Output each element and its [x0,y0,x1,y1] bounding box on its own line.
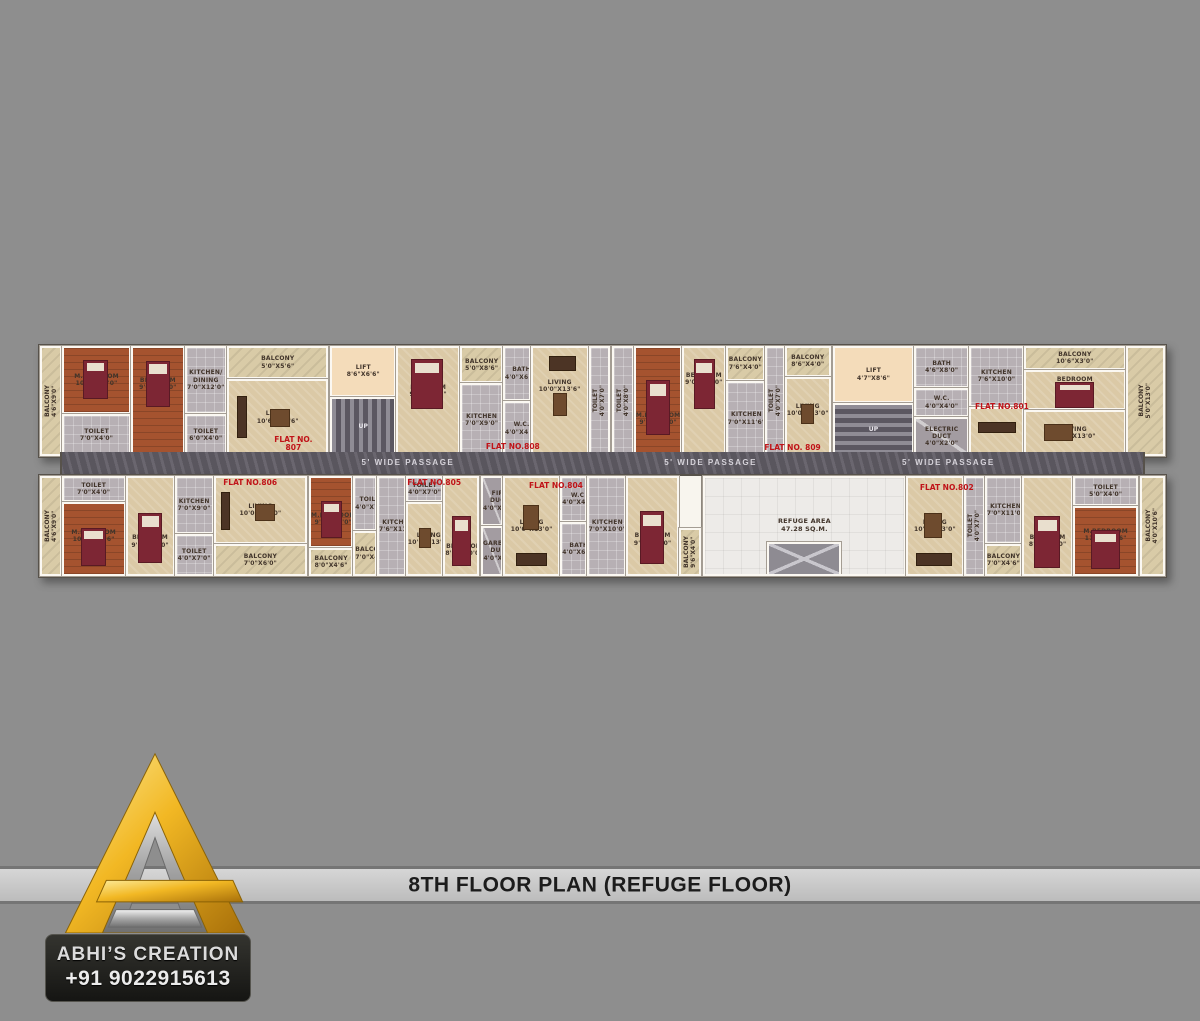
floor-plan: BALCONY 4'6"X9'0" FLAT NO. 807 M.BEDROOM… [38,338,1163,578]
refuge-area: REFUGE AREA 47.28 SQ.M. [703,476,906,576]
flat-808: FLAT NO.808 BEDROOM 9'6"X12'0" BALCONY 5… [396,346,612,456]
room-kitchen: KITCHEN 7'0"X10'0" [587,476,627,576]
room-bedroom: BEDROOM 9'0"X11'0" [126,476,175,576]
brand-phone: +91 9022915613 [65,966,230,991]
table-icon [523,505,539,530]
flat-number: FLAT NO.801 [975,403,1029,412]
room-living: LIVING 10'0"X13'0" [503,476,560,576]
room-bath: BATH 4'0"X6'0" [560,522,586,576]
room-label: W.C. 4'0"X4'0" [925,395,958,409]
sofa-icon [549,356,576,371]
room-balcony-right: BALCONY 5'0"X13'0" [1126,346,1165,456]
room-label: BALCONY 7'0"X4'6" [355,546,377,560]
room-mbedroom: M.BEDROOM 9'0"X11'0" [309,476,353,548]
room-mbedroom: M.BEDROOM 9'0"X14'0" [634,346,682,456]
room-label: BALCONY 5'0"X5'6" [261,355,294,369]
brand-name: ABHI’S CREATION [57,944,239,966]
room-living: LIVING 10'0"X13'0" [406,502,443,576]
room-label: LIFT 8'6"X6'6" [347,364,380,378]
room-living-extension [969,407,1024,457]
electric-duct: ELECTRIC DUCT 4'0"X2'0" [914,417,969,456]
room-label: BALCONY 7'6"X4'0" [729,356,762,370]
room-toilet: TOILET 6'0"X4'0" [185,414,228,456]
room-kitchen-dining: KITCHEN/ DINING 7'0"X12'0" [185,346,228,414]
room-label: KITCHEN 7'0"X9'0" [465,413,498,427]
bed-icon [452,516,470,566]
room-toilet: TOILET 4'0"X7'0" [765,346,785,456]
room-balcony: BALCONY 8'6"X4'0" [785,346,831,377]
room-toilet: TOILET 7'0"X4'0" [62,476,126,502]
room-label: UP [869,426,879,433]
bed-icon [646,380,669,435]
bed-icon [1055,382,1094,407]
sofa-icon [978,422,1016,433]
room-kitchen: KITCHEN 7'6"X10'0" [969,346,1024,407]
bed-icon [83,360,107,399]
room-label: TOILET 4'0"X7'0" [768,385,782,416]
room-toilet: TOILET 7'0"X4'0" [62,414,131,456]
lift-shaft: LIFT 8'6"X6'6" [330,346,396,397]
flat-number: FLAT NO.805 [407,479,461,488]
room-label: KITCHEN 7'0"X10'0" [589,519,626,533]
brand-box: ABHI’S CREATION +91 9022915613 [45,934,251,1002]
bed-icon [81,528,107,566]
bed-icon [138,513,162,563]
room-toilet: TOILET 4'0"X8'0" [612,346,634,456]
sofa-icon [221,492,230,530]
room-label: BALCONY 8'0"X4'6" [314,555,347,569]
room-label: TOILET 4'0"X7'0" [355,496,377,510]
room-bedroom: BEDROOM 9'0"X11'0" [131,346,184,456]
room-balcony: BALCONY 9'6"X4'0" [679,528,701,576]
fire-duct: FIRE DUCT 4'0"X2'0" [481,476,503,526]
room-balcony: BALCONY 5'0"X5'6" [227,346,328,379]
room-label: W.C. 4'0"X4'0" [562,492,586,506]
table-icon [801,404,814,424]
bottom-flat-row: BALCONY 4'6"X9'0" FLAT NO.806 TOILET 7'0… [38,474,1167,578]
staircase: UP [330,397,396,456]
room-label: FIRE DUCT 4'0"X2'0" [483,490,503,512]
room-bedroom: BEDROOM 9'0"X12'0" [682,346,726,456]
room-mbedroom: M.BEDROOM 10'6"X13'6" [62,502,126,576]
refuge-label: REFUGE AREA 47.28 SQ.M. [778,518,831,534]
room-kitchen: KITCHEN 7'6"X11'6" [377,476,406,576]
room-label: W.C. 4'0"X4'0" [505,421,531,435]
room-mbedroom: M.BEDROOM 10'6"X12'0" [62,346,131,414]
passage-label: 5' WIDE PASSAGE [664,459,757,467]
room-label: BALCONY 8'6"X4'0" [791,354,824,368]
table-icon [924,513,942,538]
bed-icon [1034,516,1060,568]
room-label: KITCHEN 7'0"X11'0" [987,503,1022,517]
bed-icon [321,501,341,538]
page-title: 8TH FLOOR PLAN (REFUGE FLOOR) [408,875,791,896]
room-toilet: TOILET 4'0"X7'0" [175,534,214,576]
room-label: BALCONY 5'0"X8'6" [465,358,498,372]
service-core: BATH 4'6"X8'0" W.C. 4'0"X4'0" ELECTRIC D… [914,346,969,456]
room-balcony: BALCONY 10'6"X3'0" [1024,346,1126,370]
flat-804: FLAT NO.804 FIRE DUCT 4'0"X2'0" GARBAGE … [481,476,703,576]
room-balcony: BALCONY 8'0"X4'6" [309,548,353,576]
bed-icon [146,361,170,408]
refuge-stair-notch [767,542,841,576]
room-label: TOILET 4'0"X8'0" [616,385,630,416]
room-label: KITCHEN/ DINING 7'0"X12'0" [187,369,224,391]
room-label: BALCONY 9'6"X4'0" [683,536,697,568]
room-living: LIVING 10'0"X13'6" [531,346,589,456]
room-label: KITCHEN 7'6"X10'0" [978,369,1015,383]
room-label: BALCONY 7'0"X6'0" [244,553,277,567]
room-label: TOILET 6'0"X4'0" [189,428,222,442]
flat-number: FLAT NO.806 [223,479,277,488]
flat-807: FLAT NO. 807 M.BEDROOM 10'6"X12'0" TOILE… [62,346,331,456]
room-label: KITCHEN 7'0"X9'0" [178,498,211,512]
room-label: KITCHEN 7'6"X11'6" [379,519,406,533]
room-label: KITCHEN 7'0"X11'6" [728,411,765,425]
balcony-strip-right: BALCONY 4'0"X10'6" [1140,476,1165,576]
room-label: TOILET 7'0"X4'0" [80,428,113,442]
room-bedroom: BEDROOM 10'6"X8'0" [1024,370,1126,410]
room-toilet: TOILET 4'0"X7'0" [589,346,610,456]
flat-number: FLAT NO.802 [920,484,974,493]
flat-809: FLAT NO. 809 TOILET 4'0"X8'0" M.BEDROOM … [612,346,833,456]
room-toilet: TOILET 5'0"X4'0" [1073,476,1138,506]
balcony-strip-left-bottom: BALCONY 4'6"X9'0" [40,476,62,576]
balcony-strip-left-top: BALCONY 4'6"X9'0" [40,346,62,456]
room-living: LIVING 14'0"X13'0" [1024,410,1126,456]
passage-label: 5' WIDE PASSAGE [362,459,455,467]
passage-label: 5' WIDE PASSAGE [902,459,995,467]
room-label: BATH 4'0"X6'0" [562,542,586,556]
room-label: TOILET 4'0"X7'0" [592,385,606,416]
room-balcony: BALCONY 7'6"X4'0" [726,346,765,381]
room-bedroom: BEDROOM 9'0"X12'0" [626,476,679,576]
page-background: BALCONY 4'6"X9'0" FLAT NO. 807 M.BEDROOM… [0,0,1200,1021]
room-label: BALCONY 4'6"X9'0" [44,385,58,417]
flat-number: FLAT NO. 807 [274,436,312,453]
staircase: UP [833,403,915,456]
room-kitchen: KITCHEN 7'0"X11'0" [985,476,1022,544]
room-bath: BATH 4'6"X8'0" [914,346,969,388]
table-icon [1044,424,1073,440]
bed-icon [1091,530,1120,569]
room-label: TOILET 4'0"X7'0" [178,548,211,562]
sofa-icon [237,396,247,438]
flat-number: FLAT NO.804 [529,482,583,491]
room-label: BATH 4'0"X6'0" [505,366,531,380]
sofa-icon [916,553,952,567]
room-label: LIVING 10'0"X13'6" [539,379,581,393]
garbage-duct: GARBAGE DUCT 4'0"X2'0" [481,526,503,576]
flat-805: FLAT NO.805 M.BEDROOM 9'0"X11'0" BALCONY… [309,476,481,576]
room-label: BALCONY 4'6"X9'0" [44,510,58,542]
central-passage: 5' WIDE PASSAGE 5' WIDE PASSAGE 5' WIDE … [60,452,1145,476]
lift-stair-core-1: LIFT 8'6"X6'6" UP [330,346,396,456]
table-icon [553,393,567,416]
room-label: TOILET 7'0"X4'0" [77,482,110,496]
room-toilet: TOILET 4'0"X7'0" [353,476,377,531]
room-bedroom: BEDROOM 8'0"X10'0" [443,476,479,576]
room-kitchen: KITCHEN 7'0"X9'0" [175,476,214,534]
room-label: BALCONY 5'0"X13'0" [1138,383,1152,418]
room-label: TOILET 4'0"X7'0" [967,510,981,541]
sofa-icon [516,553,548,567]
flat-number: FLAT NO. 809 [764,444,820,453]
brand-logo [55,748,255,938]
room-balcony: BALCONY 7'0"X4'6" [353,531,377,576]
bed-icon [694,359,716,410]
room-bedroom: BEDROOM 8'0"X10'0" [1022,476,1073,576]
table-icon [270,409,290,427]
room-kitchen: KITCHEN 7'0"X11'6" [726,381,765,456]
bed-icon [640,511,664,565]
room-bedroom: BEDROOM 9'6"X12'0" [396,346,460,456]
room-label: ELECTRIC DUCT 4'0"X2'0" [916,426,967,448]
room-bath: BATH 4'0"X6'0" [503,346,531,401]
room-label: BATH 4'6"X8'0" [925,360,958,374]
room-wc: W.C. 4'0"X4'0" [914,388,969,418]
top-flat-row: BALCONY 4'6"X9'0" FLAT NO. 807 M.BEDROOM… [38,344,1167,458]
room-balcony: BALCONY 7'0"X6'0" [214,544,307,576]
lift-stair-core-2: LIFT 4'7"X8'6" UP [833,346,915,456]
room-label: BALCONY 10'6"X3'0" [1056,351,1093,365]
gold-silver-A-logo-icon [55,748,255,933]
room-label: LIFT 4'7"X8'6" [857,367,890,381]
lift-shaft: LIFT 4'7"X8'6" [833,346,915,403]
flat-801: FLAT NO.801 KITCHEN 7'6"X10'0" BALCONY 1… [969,346,1165,456]
flat-802: FLAT NO.802 LIVING 10'0"X13'0" TOILET 4'… [906,476,1140,576]
table-icon [255,504,275,521]
room-mbedroom: M.BEDROOM 11'0"X10'6" [1073,506,1138,576]
room-balcony: BALCONY 5'0"X8'6" [460,346,503,383]
room-label: BALCONY 4'0"X10'6" [1145,508,1159,543]
bed-icon [411,359,443,410]
flat-806: FLAT NO.806 TOILET 7'0"X4'0" M.BEDROOM 1… [62,476,309,576]
room-label: UP [358,423,368,430]
room-balcony: BALCONY 7'0"X4'6" [985,544,1022,576]
flat-number: FLAT NO.808 [486,443,540,452]
room-label: TOILET 5'0"X4'0" [1089,484,1122,498]
table-icon [419,528,431,548]
room-label: BALCONY 7'0"X4'6" [987,553,1020,567]
room-label: GARBAGE DUCT 4'0"X2'0" [483,540,503,562]
